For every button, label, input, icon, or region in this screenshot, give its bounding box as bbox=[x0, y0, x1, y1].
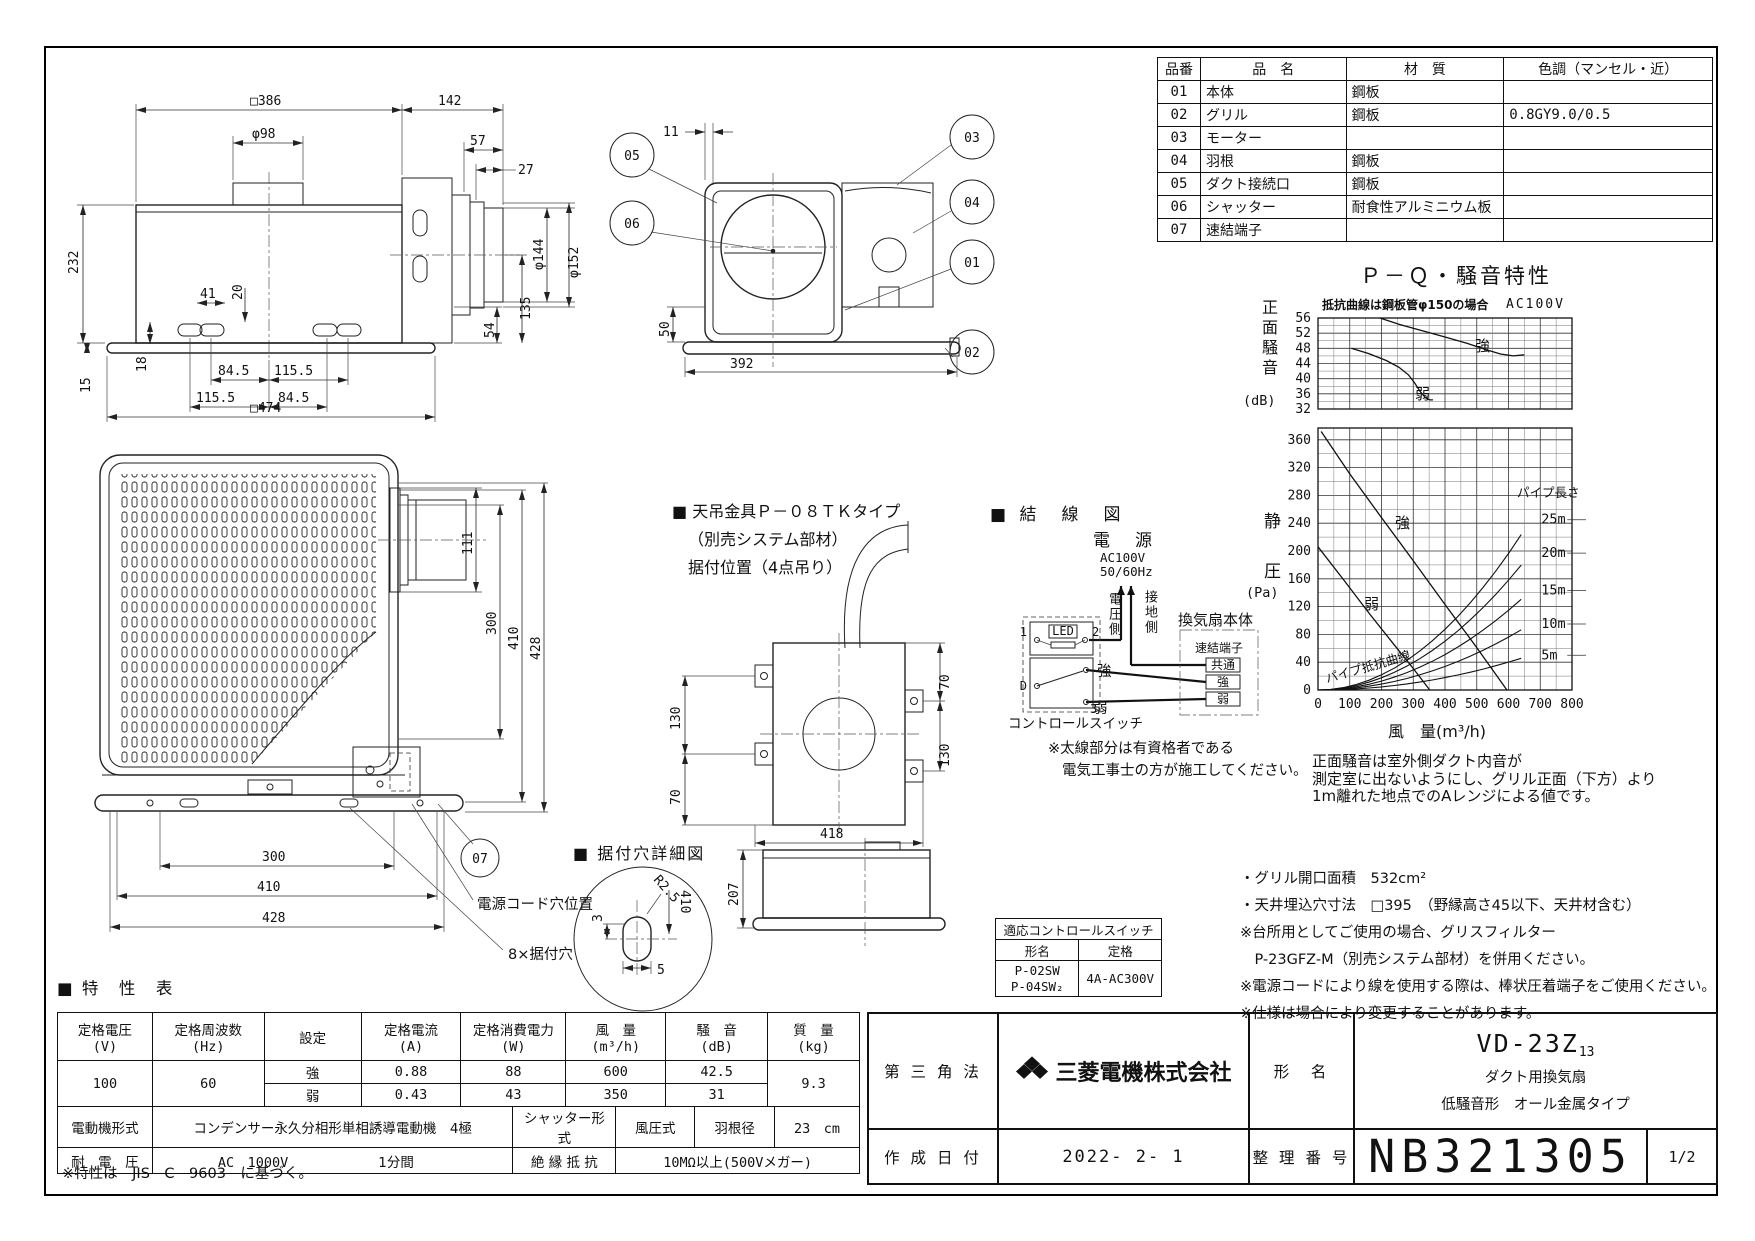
noise-y-tick: 48 bbox=[1295, 341, 1311, 356]
spec-header: 定格周波数 bbox=[158, 1019, 259, 1039]
dim-84-5: 84.5 bbox=[278, 391, 309, 406]
spec-airflow: 350 bbox=[566, 1084, 666, 1107]
spec-frequency: 60 bbox=[152, 1061, 264, 1107]
spec-table: 定格電圧(V) 定格周波数(Hz) 設定 定格電流(A) 定格消費電力(W) 風… bbox=[57, 1012, 860, 1107]
part-no: 06 bbox=[1158, 196, 1201, 219]
blade-dia-label: 羽根径 bbox=[695, 1107, 775, 1148]
spec-setting: 弱 bbox=[264, 1084, 361, 1107]
part-material: 鋼板 bbox=[1346, 150, 1504, 173]
dim-b428: 428 bbox=[262, 911, 285, 926]
spec-noise: 42.5 bbox=[666, 1061, 768, 1084]
part-color bbox=[1504, 173, 1713, 196]
motor-type-label: 電動機形式 bbox=[58, 1107, 153, 1148]
shutter-type-value: 風圧式 bbox=[616, 1107, 695, 1148]
date-label: 作 成 日 付 bbox=[869, 1130, 999, 1183]
profile-dimensions: 207 bbox=[727, 850, 763, 928]
parts-header-name: 品 名 bbox=[1200, 58, 1346, 81]
chart-note-line: 1m離れた地点でのAレンジによる値です。 bbox=[1312, 788, 1656, 806]
table-row: 06シャッター耐食性アルミニウム板 bbox=[1158, 196, 1713, 219]
spec-current: 0.88 bbox=[361, 1061, 461, 1084]
chart-series bbox=[1380, 318, 1524, 356]
spec-header: 騒 音 bbox=[671, 1019, 762, 1039]
x-tick: 500 bbox=[1465, 697, 1488, 712]
chart-note-line: 測定室に出ないようにし、グリル正面（下方）より bbox=[1312, 771, 1656, 789]
part-name: シャッター bbox=[1200, 196, 1346, 219]
callout-02: 02 bbox=[964, 346, 980, 361]
section-dimensions: 11 50 392 bbox=[658, 123, 957, 377]
spec-header-unit: (dB) bbox=[671, 1039, 762, 1055]
table-row: 04羽根鋼板 bbox=[1158, 150, 1713, 173]
noise-y-tick: 56 bbox=[1295, 311, 1311, 326]
strong-wire-label: 強 bbox=[1097, 663, 1112, 680]
dim-5: 5 bbox=[657, 963, 665, 978]
view-mount: 130 70 70 130 418 bbox=[640, 505, 970, 865]
noise-y-tick: 36 bbox=[1295, 387, 1311, 402]
part-no: 01 bbox=[1158, 81, 1201, 104]
chart-note: 正面騒音は室外側ダクト内音が 測定室に出ないようにし、グリル正面（下方）より 1… bbox=[1312, 753, 1656, 806]
table-row: 03モーター bbox=[1158, 127, 1713, 150]
dim-135: 135 bbox=[519, 297, 534, 320]
view-profile: 207 bbox=[715, 838, 955, 950]
part-material bbox=[1346, 127, 1504, 150]
dim-207: 207 bbox=[727, 883, 742, 906]
table-row: 05ダクト接続口鋼板 bbox=[1158, 173, 1713, 196]
note-line: ・天井埋込穴寸法 □395 （野縁高さ45以下、天井材含む） bbox=[1240, 893, 1716, 920]
noise-weak-label: 弱 bbox=[1415, 385, 1430, 403]
spec-current: 0.43 bbox=[361, 1084, 461, 1107]
spec-header: 設定 bbox=[270, 1027, 356, 1047]
grill-callouts: 07 電源コード穴位置 8×据付穴 bbox=[350, 804, 593, 963]
weak-wire-label: 弱 bbox=[1093, 701, 1108, 717]
spec-header-unit: (A) bbox=[367, 1039, 456, 1055]
mount-dimensions: 130 70 70 130 418 bbox=[669, 643, 953, 847]
part-material: 鋼板 bbox=[1346, 104, 1504, 127]
fan-terminal-common: 共通 bbox=[1211, 658, 1235, 672]
callout-03: 03 bbox=[964, 131, 980, 146]
dim-392: 392 bbox=[730, 357, 753, 372]
spec-weight: 9.3 bbox=[768, 1061, 860, 1107]
dim-474: □474 bbox=[250, 401, 281, 416]
spec-header: 定格消費電力 bbox=[466, 1019, 560, 1039]
company-name: 三菱電機株式会社 bbox=[1055, 1055, 1231, 1087]
callout-06: 06 bbox=[624, 217, 640, 232]
pressure-strong-label: 強 bbox=[1395, 514, 1410, 532]
insulation-label: 絶 縁 抵 抗 bbox=[513, 1148, 616, 1174]
noise-y-tick: 44 bbox=[1295, 357, 1311, 372]
model-number: VD-23Z bbox=[1477, 1029, 1579, 1058]
fan-body-label: 換気扇本体 bbox=[1178, 611, 1253, 629]
dim-left-130: 130 bbox=[669, 707, 684, 730]
part-color bbox=[1504, 127, 1713, 150]
spec-header: 質 量 bbox=[773, 1019, 854, 1039]
x-tick: 800 bbox=[1560, 697, 1583, 712]
dim-410: 410 bbox=[677, 890, 692, 913]
dim-15: 15 bbox=[79, 377, 94, 393]
part-color: 0.8GY9.0/0.5 bbox=[1504, 104, 1713, 127]
dim-111: 111 bbox=[461, 532, 476, 555]
x-tick: 200 bbox=[1370, 697, 1393, 712]
pressure-y-tick: 200 bbox=[1288, 544, 1311, 559]
number-label: 整 理 番 号 bbox=[1250, 1130, 1355, 1183]
dim-142: 142 bbox=[438, 94, 461, 109]
view-hole-detail: 3 R2.5 410 5 bbox=[565, 862, 725, 1017]
dim-386: □386 bbox=[250, 94, 281, 109]
dim-232: 232 bbox=[67, 251, 82, 274]
product-type: ダクト用換気扇 bbox=[1485, 1066, 1587, 1087]
dim-115-5: 115.5 bbox=[196, 391, 235, 406]
part-no: 02 bbox=[1158, 104, 1201, 127]
dim-3: 3 bbox=[591, 914, 606, 922]
part-name: ダクト接続口 bbox=[1200, 173, 1346, 196]
dim-115-5: 115.5 bbox=[274, 364, 313, 379]
view-side: □386 142 φ98 57 27 232 41 20 18 15 84.5 … bbox=[50, 60, 585, 480]
spec-setting: 強 bbox=[264, 1061, 361, 1084]
motor-type-value: コンデンサー永久分相形単相誘導電動機 4極 bbox=[152, 1107, 513, 1148]
pipe-length-label: 25m bbox=[1541, 512, 1565, 528]
spec-header-unit: (m³/h) bbox=[571, 1039, 660, 1055]
part-color bbox=[1504, 219, 1713, 242]
spec-power: 88 bbox=[461, 1061, 566, 1084]
table-row: 100 60 強 0.88 88 600 42.5 9.3 bbox=[58, 1061, 860, 1084]
side-body bbox=[107, 172, 520, 360]
quick-terminal-label: 速結端子 bbox=[1195, 641, 1243, 655]
part-material: 鋼板 bbox=[1346, 173, 1504, 196]
parts-header-color: 色調（マンセル・近） bbox=[1504, 58, 1713, 81]
spec-power: 43 bbox=[461, 1084, 566, 1107]
spec-footnote: ※特性は JIS C 9603 に基づく。 bbox=[62, 1162, 313, 1183]
part-no: 04 bbox=[1158, 150, 1201, 173]
spec-header: 定格電圧 bbox=[63, 1019, 147, 1039]
parts-header-no: 品番 bbox=[1158, 58, 1201, 81]
hole-detail-title: ■ 据付穴詳細図 bbox=[573, 840, 705, 864]
part-material: 耐食性アルミニウム板 bbox=[1346, 196, 1504, 219]
model-label: 形 名 bbox=[1250, 1014, 1355, 1128]
x-tick: 300 bbox=[1402, 697, 1425, 712]
dim-57: 57 bbox=[470, 134, 486, 149]
company-cell: 三菱電機株式会社 bbox=[999, 1014, 1250, 1128]
shutter-type-label: シャッター形式 bbox=[513, 1107, 616, 1148]
x-axis-label: 風 量(m³/h) bbox=[1388, 718, 1486, 742]
part-color bbox=[1504, 81, 1713, 104]
profile-body bbox=[753, 838, 945, 946]
part-name: 本体 bbox=[1200, 81, 1346, 104]
callout-05: 05 bbox=[624, 149, 640, 164]
mount-body bbox=[755, 521, 923, 835]
insulation-value: 10MΩ以上(500Vメガー) bbox=[616, 1148, 860, 1174]
spec-header: 定格電流 bbox=[367, 1019, 456, 1039]
pressure-y-tick: 40 bbox=[1295, 655, 1311, 670]
side-dimensions: □386 142 φ98 57 27 232 41 20 18 15 84.5 … bbox=[67, 94, 582, 422]
part-no: 05 bbox=[1158, 173, 1201, 196]
power-voltage: AC100V bbox=[1100, 551, 1153, 565]
notes-list: ・グリル開口面積 532cm² ・天井埋込穴寸法 □395 （野縁高さ45以下、… bbox=[1240, 866, 1716, 1028]
dim-84-5: 84.5 bbox=[218, 364, 249, 379]
dim-right-70: 70 bbox=[938, 674, 953, 690]
hole-detail-body bbox=[574, 867, 712, 1011]
terminal-2: 2 bbox=[1092, 625, 1099, 639]
chart-note-line: 正面騒音は室外側ダクト内音が bbox=[1312, 753, 1656, 771]
pressure-y-tick: 120 bbox=[1288, 600, 1311, 615]
table-row: 電動機形式 コンデンサー永久分相形単相誘導電動機 4極 シャッター形式 風圧式 … bbox=[58, 1107, 860, 1148]
parts-table: 品番 品 名 材 質 色調（マンセル・近） 01本体鋼板 02グリル鋼板0.8G… bbox=[1157, 57, 1713, 242]
rating-header: 定格 bbox=[1079, 940, 1162, 961]
spec-noise: 31 bbox=[666, 1084, 768, 1107]
title-block: 第 三 角 法 三菱電機株式会社 形 名 VD-23Z13 ダクト用換気扇 低騒… bbox=[867, 1012, 1718, 1185]
grill-body bbox=[95, 455, 486, 811]
x-tick: 700 bbox=[1529, 697, 1552, 712]
view-grill: 111 300 410 428 300 410 428 07 電源コード穴位置 … bbox=[90, 450, 630, 975]
wiring-title: ■ 結 線 図 bbox=[990, 500, 1124, 525]
drawing-number: NB321305 bbox=[1355, 1130, 1648, 1183]
pressure-y-tick: 240 bbox=[1288, 516, 1311, 531]
dim-54: 54 bbox=[483, 322, 498, 338]
wiring-note-line: ※太線部分は有資格者である bbox=[1048, 738, 1308, 760]
model-header: 形名 bbox=[996, 940, 1079, 961]
note-line: P-23GFZ-M（別売システム部材）を併用ください。 bbox=[1240, 947, 1716, 974]
fan-terminal-strong: 強 bbox=[1217, 675, 1229, 689]
dim-20: 20 bbox=[231, 284, 246, 300]
model-cell: VD-23Z13 ダクト用換気扇 低騒音形 オール金属タイプ bbox=[1355, 1014, 1716, 1128]
hole-detail-dimensions: 3 R2.5 410 5 bbox=[591, 873, 692, 978]
note-line: ・グリル開口面積 532cm² bbox=[1240, 866, 1716, 893]
wiring-note: ※太線部分は有資格者である 電気工事士の方が施工してください。 bbox=[1048, 738, 1308, 782]
part-name: 速結端子 bbox=[1200, 219, 1346, 242]
noise-y-tick: 32 bbox=[1295, 402, 1311, 417]
dim-27: 27 bbox=[518, 163, 534, 178]
x-tick: 0 bbox=[1314, 697, 1322, 712]
switch-model: P-04SW₂ bbox=[1001, 979, 1073, 995]
pipe-length-label: 10m bbox=[1541, 616, 1565, 632]
dim-v300: 300 bbox=[485, 612, 500, 635]
spec-voltage: 100 bbox=[58, 1061, 153, 1107]
table-row: 02グリル鋼板0.8GY9.0/0.5 bbox=[1158, 104, 1713, 127]
projection-label: 第 三 角 法 bbox=[869, 1014, 999, 1128]
noise-y-tick: 40 bbox=[1295, 372, 1311, 387]
spec-header-unit: (W) bbox=[466, 1039, 560, 1055]
callout-04: 04 bbox=[964, 196, 980, 211]
pressure-y-tick: 280 bbox=[1288, 488, 1311, 503]
wiring-lines bbox=[1086, 586, 1206, 702]
switch-rating: 4A-AC300V bbox=[1079, 961, 1162, 997]
part-name: モーター bbox=[1200, 127, 1346, 150]
pipe-group-label: パイプ長さ bbox=[1517, 485, 1580, 500]
switch-model: P-02SW bbox=[1001, 963, 1073, 979]
spec-header: 風 量 bbox=[571, 1019, 660, 1039]
mounting-holes-label: 8×据付穴 bbox=[508, 946, 573, 963]
page-number: 1/2 bbox=[1648, 1130, 1716, 1183]
part-name: グリル bbox=[1200, 104, 1346, 127]
noise-strong-label: 強 bbox=[1475, 337, 1490, 355]
dim-v410: 410 bbox=[507, 627, 522, 650]
wiring-note-line: 電気工事士の方が施工してください。 bbox=[1048, 760, 1308, 782]
table-row: 07速結端子 bbox=[1158, 219, 1713, 242]
wiring-diagram: LED 1 2 D 3 強 弱 コントロールスイッチ 換気扇本体 速結端子 共通… bbox=[985, 570, 1280, 755]
part-material: 鋼板 bbox=[1346, 81, 1504, 104]
power-label: 電 源 bbox=[1093, 526, 1156, 551]
fan-terminal-weak: 弱 bbox=[1217, 692, 1229, 706]
control-switch-title: 適応コントロールスイッチ bbox=[996, 919, 1162, 940]
spec-header-unit: (Hz) bbox=[158, 1039, 259, 1055]
part-color bbox=[1504, 150, 1713, 173]
terminal-1: 1 bbox=[1020, 625, 1027, 639]
dim-b300: 300 bbox=[262, 850, 285, 865]
blade-dia-value: 23 cm bbox=[775, 1107, 860, 1148]
callout-07: 07 bbox=[472, 852, 488, 867]
dim-18: 18 bbox=[135, 356, 150, 372]
control-switch-table: 適応コントロールスイッチ 形名 定格 P-02SW P-04SW₂ 4A-AC3… bbox=[995, 918, 1162, 997]
x-tick: 100 bbox=[1338, 697, 1361, 712]
part-material bbox=[1346, 219, 1504, 242]
chart-series bbox=[1318, 630, 1521, 690]
noise-y-tick: 52 bbox=[1295, 326, 1311, 341]
dim-right-130: 130 bbox=[938, 744, 953, 767]
pipe-length-label: 15m bbox=[1541, 583, 1565, 599]
dim-b410: 410 bbox=[257, 880, 280, 895]
pressure-y-tick: 160 bbox=[1288, 572, 1311, 587]
x-tick: 400 bbox=[1433, 697, 1456, 712]
drawing-sheet: { "parts_table": { "headers": ["品番","品 名… bbox=[0, 0, 1755, 1241]
dim-dia98: φ98 bbox=[252, 127, 275, 142]
chart-series bbox=[1321, 432, 1507, 691]
section-body bbox=[683, 173, 960, 367]
note-line: ※電源コードにより線を使用する際は、棒状圧着端子をご使用ください。 bbox=[1240, 974, 1716, 1001]
part-no: 03 bbox=[1158, 127, 1201, 150]
dim-v428: 428 bbox=[529, 637, 544, 660]
parts-header-material: 材 質 bbox=[1346, 58, 1504, 81]
dim-left-70: 70 bbox=[669, 789, 684, 805]
pq-chart: 5652484440363236032028024020016012080400… bbox=[1245, 256, 1720, 721]
pressure-y-tick: 0 bbox=[1303, 683, 1311, 698]
part-name: 羽根 bbox=[1200, 150, 1346, 173]
view-section: 05 06 03 04 01 02 11 50 392 bbox=[545, 85, 1010, 420]
pressure-y-tick: 360 bbox=[1288, 433, 1311, 448]
spec-table-title: ■ 特 性 表 bbox=[57, 975, 174, 999]
pressure-y-tick: 320 bbox=[1288, 461, 1311, 476]
pipe-length-label: 20m bbox=[1541, 545, 1565, 561]
callout-01: 01 bbox=[964, 256, 980, 271]
dim-41: 41 bbox=[200, 287, 216, 302]
spec-header-unit: (kg) bbox=[773, 1039, 854, 1055]
control-switch-label: コントロールスイッチ bbox=[1008, 716, 1143, 732]
dim-50: 50 bbox=[658, 321, 673, 337]
pipe-length-label: 5m bbox=[1541, 647, 1557, 663]
mitsubishi-logo-icon bbox=[1015, 1056, 1049, 1087]
pressure-y-tick: 80 bbox=[1295, 627, 1311, 642]
spec-airflow: 600 bbox=[566, 1061, 666, 1084]
spec-header-unit: (V) bbox=[63, 1039, 147, 1055]
part-no: 07 bbox=[1158, 219, 1201, 242]
pressure-weak-label: 弱 bbox=[1364, 595, 1379, 613]
product-subtype: 低騒音形 オール金属タイプ bbox=[1441, 1093, 1630, 1114]
x-tick: 600 bbox=[1497, 697, 1520, 712]
terminal-d: D bbox=[1020, 679, 1027, 693]
creation-date: 2022- 2- 1 bbox=[999, 1130, 1250, 1183]
dim-11: 11 bbox=[663, 125, 679, 140]
part-color bbox=[1504, 196, 1713, 219]
table-row: 01本体鋼板 bbox=[1158, 81, 1713, 104]
model-number-suffix: 13 bbox=[1579, 1045, 1595, 1060]
led-label: LED bbox=[1052, 624, 1074, 638]
note-line: ※台所用としてご使用の場合、グリスフィルター bbox=[1240, 920, 1716, 947]
